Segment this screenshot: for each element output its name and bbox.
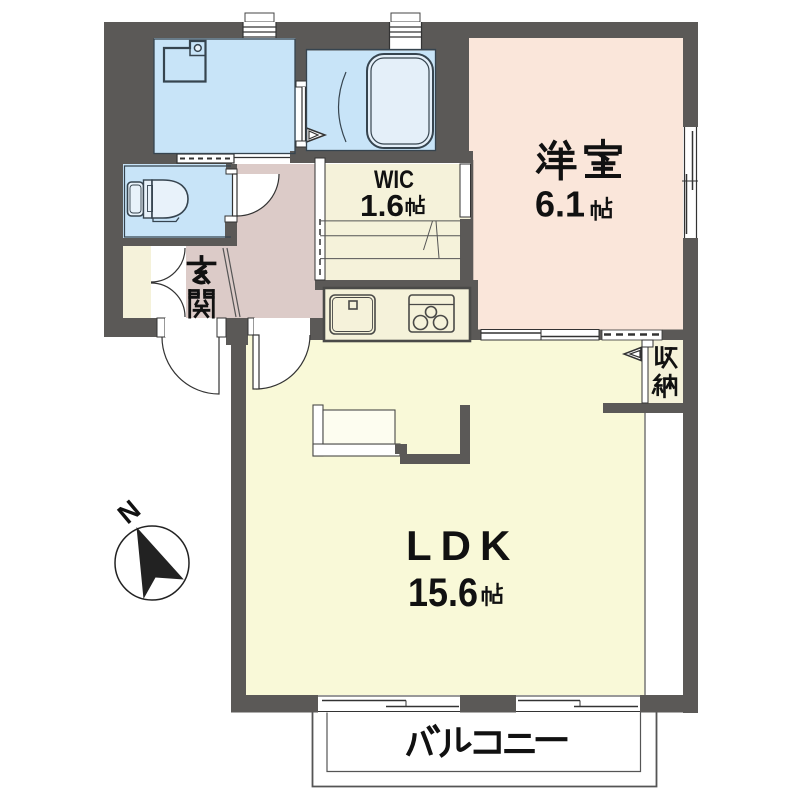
svg-text:1.6: 1.6: [360, 188, 404, 223]
svg-text:6.1: 6.1: [535, 184, 585, 225]
svg-text:15.6: 15.6: [408, 571, 478, 615]
svg-text:LDK: LDK: [406, 522, 519, 569]
